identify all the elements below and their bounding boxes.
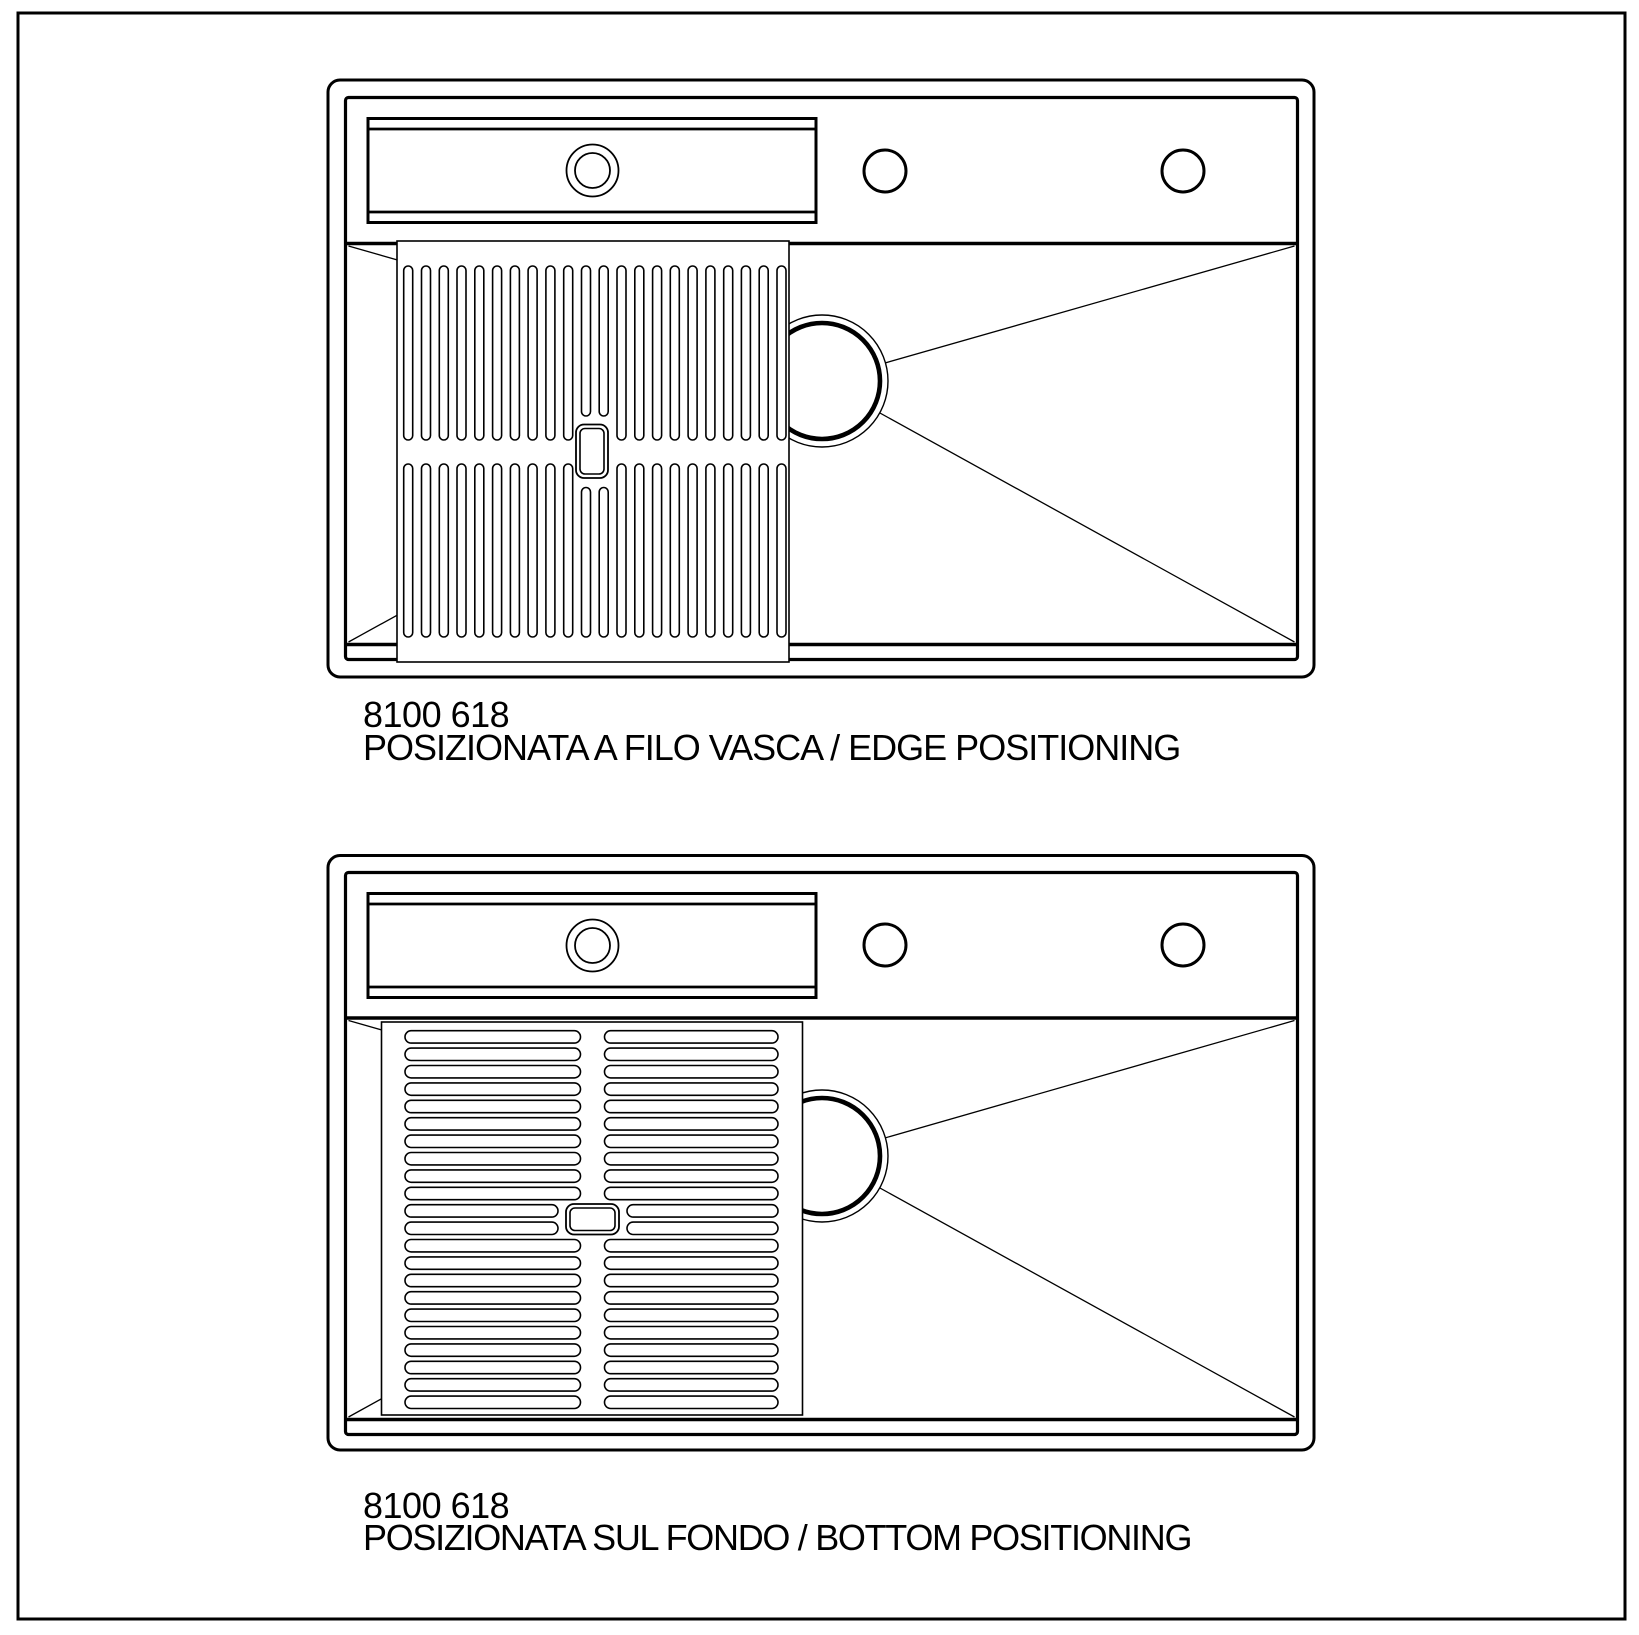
svg-text:POSIZIONATA SUL FONDO / BOTTOM: POSIZIONATA SUL FONDO / BOTTOM POSITIONI… (363, 1517, 1191, 1558)
svg-text:POSIZIONATA A FILO VASCA / EDG: POSIZIONATA A FILO VASCA / EDGE POSITION… (363, 727, 1180, 768)
